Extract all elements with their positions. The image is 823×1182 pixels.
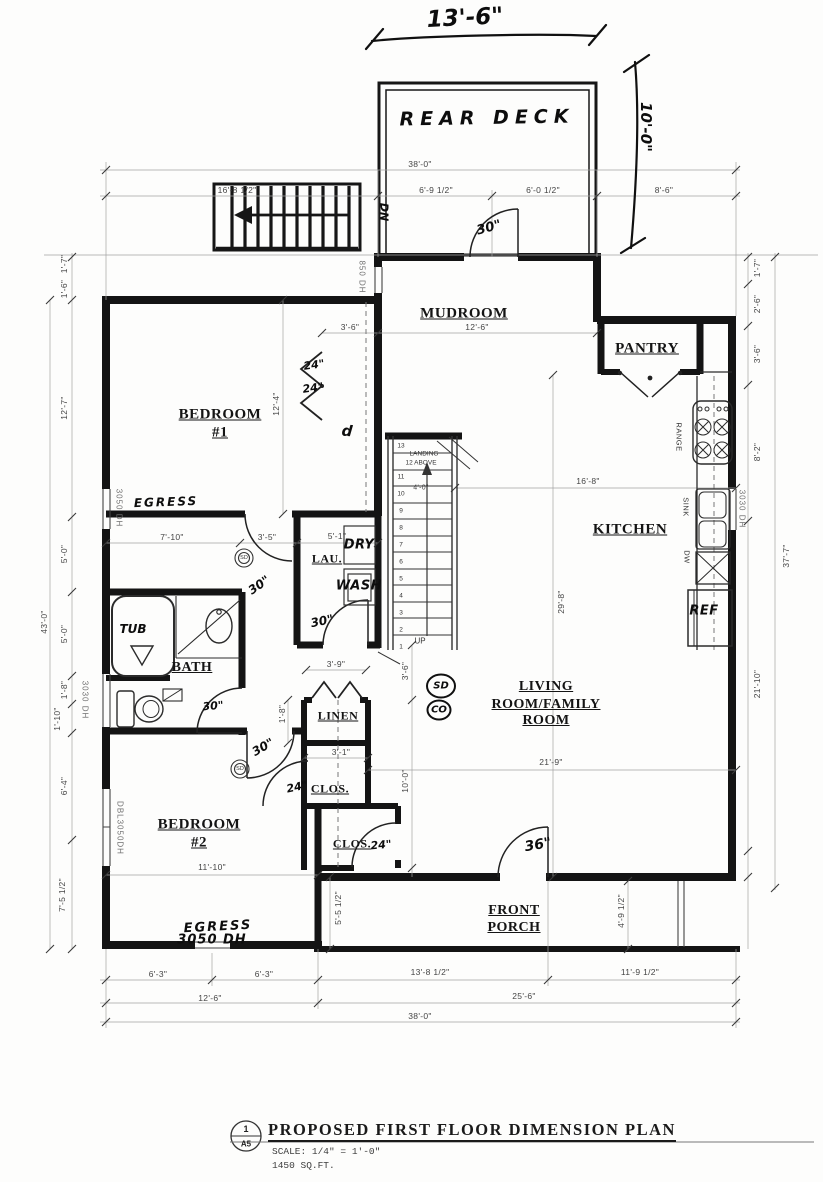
dim-top-3: 6'-0 1/2" [526, 185, 560, 195]
window-label-bed2-front: 3050 DH [177, 933, 246, 948]
stair-tread-number: 6 [399, 559, 403, 566]
window-label-kitchen: 3030 DH [738, 490, 747, 529]
drawing-area: 1450 SQ.FT. [272, 1160, 335, 1171]
room-label-mudroom: MUDROOM [420, 306, 508, 323]
stair-tread-number: 7 [399, 542, 403, 549]
dim-living-depth: 29'-8" [556, 590, 566, 613]
dim-bottom-5: 25'-6" [512, 991, 535, 1001]
room-label-laundry: LAU. [312, 552, 342, 567]
dim-left-4: 5'-0" [59, 625, 69, 643]
room-label-porch-1: FRONT [488, 903, 540, 919]
dim-right-3: 8'-2" [752, 443, 762, 461]
dim-right-2: 3'-6" [752, 345, 762, 363]
appliance-label-dishwasher: DW [683, 550, 692, 564]
room-label-closet-bed2: CLOS. [333, 837, 371, 852]
appliance-label-refrigerator: REF [689, 604, 718, 619]
bath-door-size: 30" [202, 699, 224, 714]
dim-left-3: 5'-0" [59, 545, 69, 563]
dim-left-5: 1'-8" [59, 681, 69, 699]
dim-top-4: 8'-6" [655, 185, 673, 195]
smoke-detector-handwritten: SD [433, 681, 449, 692]
handwritten-dim-strokes [366, 25, 649, 253]
dim-left-0: 1'-7" [59, 255, 69, 273]
dim-kitchen-width: 16'-8" [576, 476, 599, 486]
stair-tread-number: 4 [399, 593, 403, 600]
dim-living-width: 21'-9" [539, 757, 562, 767]
dim-bottom-3: 11'-9 1/2" [621, 967, 659, 977]
stair-landing-note-2: 12 ABOVE [405, 460, 436, 467]
room-label-bath: BATH [172, 660, 213, 676]
deck-width-dim-handwritten: 13'-6" [426, 3, 504, 33]
detail-number: 1 [243, 1124, 248, 1134]
dim-mudroom-width: 12'-6" [465, 322, 488, 332]
dim-hall-width: 3'-5" [258, 532, 276, 542]
appliance-label-washer: WASH [336, 579, 382, 594]
stair-tread-number: 9 [399, 508, 403, 515]
tub-label: TUB [119, 622, 146, 636]
dim-left-7: 6'-4" [59, 777, 69, 795]
dim-right-overall: 37'-7" [781, 544, 791, 567]
stair-tread-number: 11 [398, 474, 405, 481]
porch-posts [678, 881, 684, 947]
stair-tread-number: 8 [399, 525, 403, 532]
dim-right-1: 2'-6" [752, 295, 762, 313]
appliance-label-range: RANGE [675, 422, 684, 451]
dim-bottom-0: 6'-3" [149, 969, 167, 979]
dim-top-1: 16'-8 1/2" [218, 185, 257, 195]
bed2-closet-door-size: 24" [370, 838, 392, 853]
dim-top-2: 6'-9 1/2" [419, 185, 453, 195]
plan-canvas: 13'-6" REAR DECK 10'-0" DN 30" 24" 24" d… [0, 0, 823, 1182]
closet-mark: d [341, 422, 353, 441]
dim-porch-depth-left: 5'-5 1/2" [333, 891, 343, 925]
window-label-mudroom: 850 DH [358, 260, 367, 293]
dim-hall-depth: 10'-0" [400, 769, 410, 792]
dim-porch-depth-right: 4'-9 1/2" [616, 894, 626, 928]
stair-tread-number: 3 [399, 610, 403, 617]
pantry-hinge-left [618, 371, 622, 375]
stair-tread-number: 10 [397, 491, 404, 498]
dim-bottom-overall: 38'-0" [408, 1011, 431, 1021]
dim-bottom-1: 6'-3" [255, 969, 273, 979]
room-label-living-1: LIVING [519, 679, 573, 695]
co-detector-handwritten: CO [431, 705, 447, 716]
appliance-label-sink: SINK [682, 497, 691, 517]
dim-linen-width: 3'-9" [327, 659, 345, 669]
egress-note-bed1: EGRESS [134, 494, 199, 510]
dim-bed1-width: 7'-10" [160, 532, 183, 542]
dim-right-0: 1'-7" [752, 259, 762, 277]
dim-left-1: 1'-6" [59, 280, 69, 298]
rear-deck-label: REAR DECK [399, 105, 574, 130]
dim-left-6: 1'-10" [52, 707, 62, 730]
room-label-bedroom2-num: #2 [191, 835, 207, 852]
dim-left-2: 12'-7" [59, 396, 69, 419]
room-label-closet-hall: CLOS. [311, 782, 349, 797]
dim-linen-side: 1'-8" [277, 705, 287, 723]
sheet-ref: A5 [241, 1140, 251, 1149]
deck-depth-dim-handwritten: 10'-0" [637, 102, 655, 152]
window-label-bed1: 3050 DH [115, 489, 124, 528]
dim-left-overall: 43'-0" [39, 610, 49, 633]
drawing-scale: SCALE: 1/4" = 1'-0" [272, 1146, 380, 1157]
room-label-bedroom1-num: #1 [212, 425, 228, 442]
window-label-bath: 3030 DH [81, 681, 90, 720]
dim-right-4: 21'-10" [752, 670, 762, 698]
room-label-porch-2: PORCH [487, 920, 540, 936]
smoke-detector-symbol-text-2: SD [236, 766, 244, 772]
dim-bed2-width: 11'-10" [198, 862, 226, 872]
stair-tread-number: 13 [397, 443, 404, 450]
room-label-bedroom2: BEDROOM [158, 817, 241, 834]
room-label-bedroom1: BEDROOM [179, 407, 262, 424]
dim-stair-width: 4'-0" [413, 485, 428, 492]
pantry-hinge-right [678, 371, 682, 375]
stair-tread-number: 1 [399, 644, 403, 651]
stair-landing-note-1: LANDING [410, 451, 439, 458]
room-label-living-2: ROOM/FAMILY [492, 697, 601, 713]
room-label-pantry: PANTRY [615, 341, 679, 358]
smoke-detector-symbol-text-1: SD [240, 555, 248, 561]
stair-tread-number: 2 [399, 627, 403, 634]
dim-linen-depth: 3'-6" [400, 662, 410, 680]
window-label-bed2-side: DBL3050DH [116, 801, 125, 855]
room-label-living-3: ROOM [522, 713, 569, 729]
room-label-kitchen: KITCHEN [593, 522, 667, 539]
dim-bottom-2: 13'-8 1/2" [411, 967, 450, 977]
dim-left-8: 7'-5 1/2" [57, 878, 67, 912]
pantry-door-meet-dot [648, 376, 653, 381]
dim-closet-row-width: 3'-1" [332, 747, 350, 757]
dim-bed1-depth: 12'-4" [271, 392, 281, 415]
deck-stair-note: DN [378, 203, 391, 221]
stair-up-label: UP [414, 637, 425, 646]
dim-closet1-width: 3'-6" [341, 322, 359, 332]
deck-stair-arrow [234, 206, 252, 224]
stair-tread-number: 5 [399, 576, 403, 583]
drawing-title: PROPOSED FIRST FLOOR DIMENSION PLAN [268, 1120, 676, 1142]
appliance-label-dryer: DRY [344, 538, 375, 553]
dim-bottom-4: 12'-6" [198, 993, 221, 1003]
room-label-linen: LINEN [318, 709, 359, 724]
dim-top-overall: 38'-0" [408, 159, 431, 169]
floor-plan-linework [0, 0, 823, 1182]
